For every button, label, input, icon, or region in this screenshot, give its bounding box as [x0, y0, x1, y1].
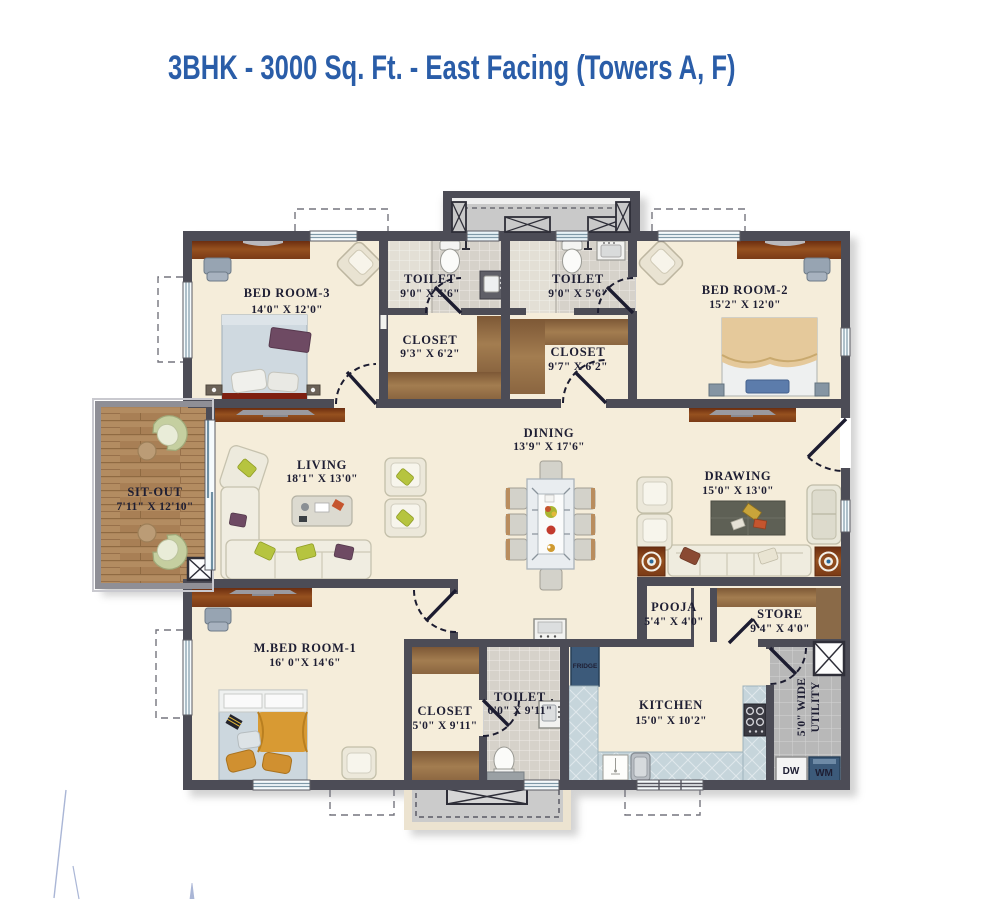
svg-text:WM: WM — [815, 768, 833, 779]
svg-text:9'4" X 4'0": 9'4" X 4'0" — [750, 623, 810, 635]
svg-text:14'0" X 12'0": 14'0" X 12'0" — [251, 304, 323, 316]
svg-text:POOJA: POOJA — [651, 600, 697, 614]
svg-text:KITCHEN: KITCHEN — [639, 698, 703, 712]
svg-text:9'7" X 6'2": 9'7" X 6'2" — [548, 361, 608, 373]
svg-text:18'1" X 13'0": 18'1" X 13'0" — [286, 473, 358, 485]
svg-text:9'0" X 5'6": 9'0" X 5'6" — [400, 288, 460, 300]
svg-text:CLOSET: CLOSET — [403, 333, 458, 347]
svg-text:6'0" X 9'11": 6'0" X 9'11" — [488, 705, 553, 717]
svg-text:5'0" X 9'11": 5'0" X 9'11" — [413, 720, 478, 732]
svg-text:7'11" X 12'10": 7'11" X 12'10" — [116, 501, 193, 513]
svg-text:CLOSET: CLOSET — [551, 345, 606, 359]
svg-text:TOILET: TOILET — [404, 272, 456, 286]
svg-text:STORE: STORE — [757, 607, 803, 621]
svg-text:15'2" X 12'0": 15'2" X 12'0" — [709, 299, 781, 311]
svg-text:16' 0"X 14'6": 16' 0"X 14'6" — [269, 657, 341, 669]
svg-text:LIVING: LIVING — [297, 458, 347, 472]
svg-text:DRAWING: DRAWING — [705, 469, 772, 483]
svg-text:5'0" WIDE: 5'0" WIDE — [796, 678, 808, 736]
svg-text:9'3" X 6'2": 9'3" X 6'2" — [400, 348, 460, 360]
svg-text:BED ROOM-2: BED ROOM-2 — [702, 283, 789, 297]
svg-text:CLOSET: CLOSET — [418, 704, 473, 718]
svg-text:9'0" X 5'6": 9'0" X 5'6" — [548, 288, 608, 300]
svg-text:DINING: DINING — [524, 426, 575, 440]
svg-text:BED ROOM-3: BED ROOM-3 — [244, 286, 331, 300]
svg-text:UTILITY: UTILITY — [810, 681, 822, 732]
svg-text:DW: DW — [783, 766, 800, 777]
svg-text:15'0" X 13'0": 15'0" X 13'0" — [702, 485, 774, 497]
svg-text:SIT-OUT: SIT-OUT — [127, 485, 182, 499]
svg-text:13'9" X 17'6": 13'9" X 17'6" — [513, 441, 585, 453]
svg-text:TOILET: TOILET — [494, 690, 546, 704]
svg-text:TOILET: TOILET — [552, 272, 604, 286]
svg-text:FRIDGE: FRIDGE — [573, 663, 598, 670]
svg-text:5'4" X 4'0": 5'4" X 4'0" — [644, 616, 704, 628]
svg-text:15'0" X 10'2": 15'0" X 10'2" — [635, 715, 707, 727]
svg-text:M.BED ROOM-1: M.BED ROOM-1 — [254, 641, 357, 655]
